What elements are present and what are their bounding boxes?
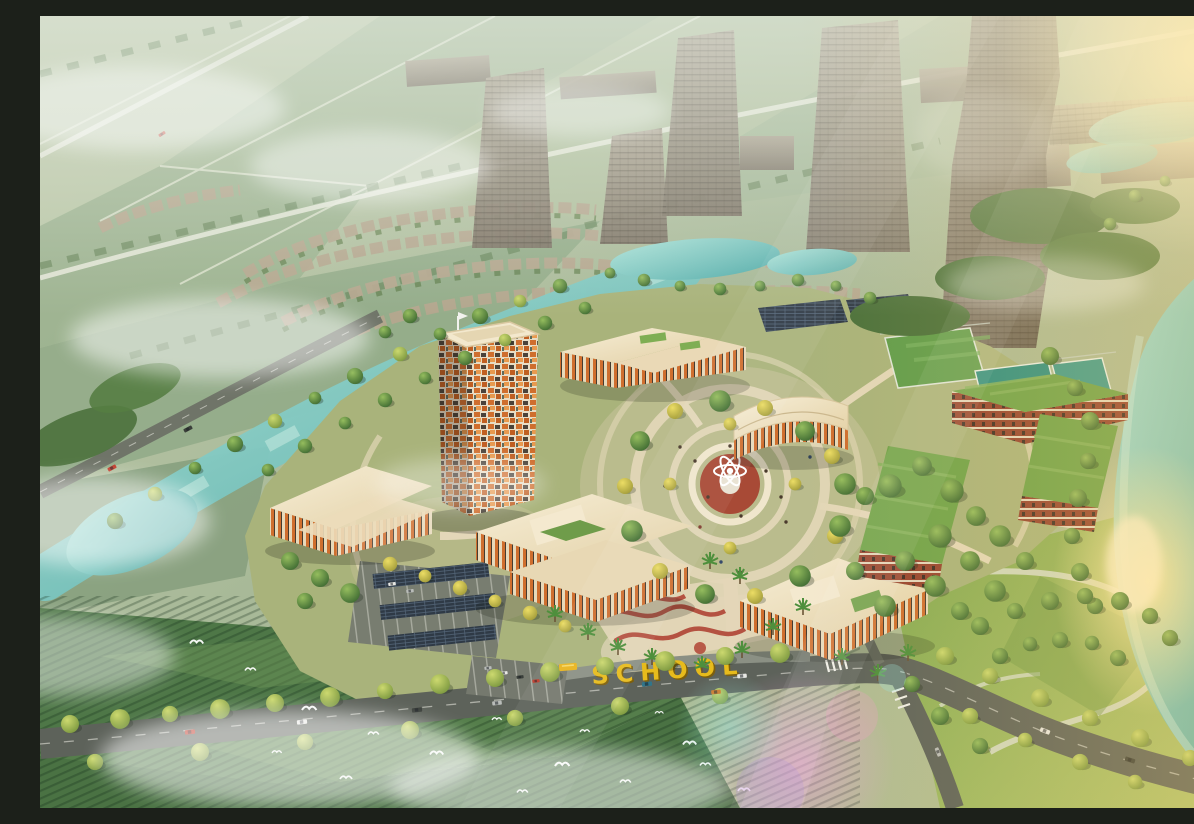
sun-glow bbox=[800, 16, 1194, 808]
aerial-rendering: SCHOOL SCHOOL bbox=[40, 16, 1194, 808]
screenshot-root: SCHOOL SCHOOL bbox=[40, 16, 1194, 808]
